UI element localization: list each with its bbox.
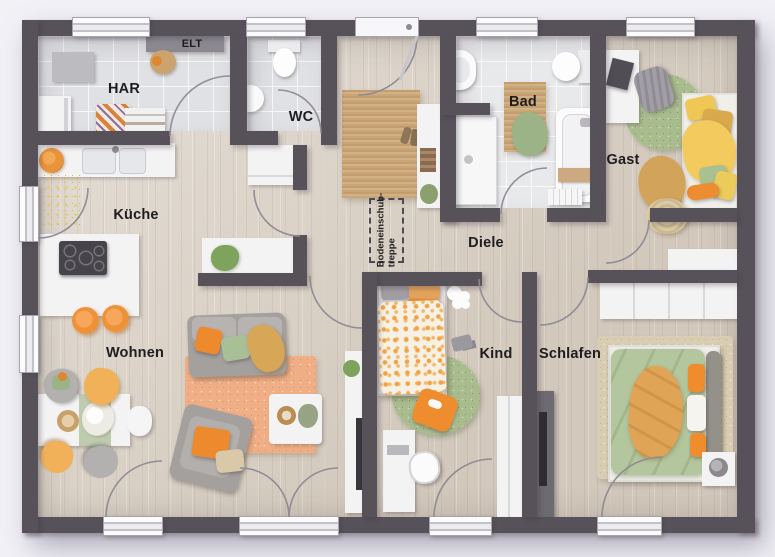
bath-radiator xyxy=(548,189,582,205)
room-label-kueche: Küche xyxy=(113,207,158,223)
wc-toilet-bowl xyxy=(273,48,296,77)
room-label-elt: ELT xyxy=(182,38,203,50)
door-wohnen-double xyxy=(239,516,339,536)
tv-sideboard-plant xyxy=(343,360,360,377)
tool-basket-handle xyxy=(152,56,162,66)
bar-stool-2 xyxy=(102,305,129,332)
room-label-gast: Gast xyxy=(606,152,639,168)
wall-exterior-right xyxy=(737,20,755,533)
kids-flower-rug xyxy=(447,286,462,301)
kids-duvet-dotted xyxy=(377,300,446,395)
wall-wc-east xyxy=(321,36,337,145)
kitchen-faucet xyxy=(112,146,119,153)
fruit-bowl xyxy=(39,148,64,173)
room-label-wohnen: Wohnen xyxy=(106,345,164,361)
floor-plan: Bodeneinschub-treppe xyxy=(0,0,775,557)
attic-stairs-label-line1: Bodeneinschub- xyxy=(376,193,387,267)
kids-desk-keyboard xyxy=(387,445,409,455)
entry-door-handle xyxy=(406,24,412,30)
bedroom-wardrobe xyxy=(600,283,737,319)
wall-hall-living xyxy=(198,273,307,286)
wall-bath-stub xyxy=(440,103,490,115)
dining-chair-decor-orange xyxy=(58,372,67,381)
hall-jute-rug xyxy=(342,90,420,198)
coffee-table-bowl xyxy=(277,406,296,425)
washing-machine-door xyxy=(64,98,68,132)
sofa-pillow-orange xyxy=(194,326,224,356)
wall-kids-west xyxy=(362,272,377,517)
attic-stairs-label: Bodeneinschub-treppe xyxy=(376,193,399,267)
window-gast xyxy=(626,17,695,37)
wall-kitchen-hall-lower xyxy=(293,235,307,275)
wall-wc-south xyxy=(247,131,278,145)
corridor-bench xyxy=(668,249,737,272)
bath-towel xyxy=(512,112,548,156)
room-label-kind: Kind xyxy=(479,346,512,362)
wall-kids-north xyxy=(362,272,482,286)
wall-bath-guest xyxy=(590,36,606,222)
wall-bath-west xyxy=(440,36,456,222)
lounge-pillow-tan xyxy=(215,449,245,474)
wall-har-wc xyxy=(230,36,247,145)
window-wohnen-left xyxy=(19,315,39,373)
storage-cabinet xyxy=(52,52,94,82)
kitchen-sink-2 xyxy=(119,148,146,174)
kids-wardrobe xyxy=(497,396,522,517)
flower-decor xyxy=(44,174,82,226)
room-label-har: HAR xyxy=(108,81,140,97)
window-schlafen xyxy=(597,516,662,536)
kitchen-sink-1 xyxy=(82,148,116,174)
room-label-schlafen: Schlafen xyxy=(539,346,601,362)
wall-bath-south-right xyxy=(547,208,590,222)
hall-shelf-plant xyxy=(420,184,438,204)
wall-bedroom-north xyxy=(588,270,737,283)
bar-stool-1 xyxy=(72,307,99,334)
nightstand-lamp xyxy=(709,458,728,477)
room-label-bad: Bad xyxy=(509,94,537,110)
window-kind xyxy=(429,516,492,536)
bed-pillow-white xyxy=(687,395,706,431)
hall-shelf-books xyxy=(420,148,436,172)
window-bad xyxy=(476,17,538,37)
wall-kids-bedroom xyxy=(522,272,537,517)
door-kueche-terrace xyxy=(19,186,39,242)
bath-toilet-bowl xyxy=(552,52,580,81)
room-label-diele: Diele xyxy=(468,235,504,251)
wall-bath-south-left xyxy=(440,208,500,222)
wall-exterior-left xyxy=(22,20,38,533)
door-wohnen-terrace xyxy=(103,516,163,536)
room-label-wc: WC xyxy=(289,109,314,125)
dining-chair-white xyxy=(127,406,152,436)
table-plate xyxy=(57,410,79,432)
wall-guest-south xyxy=(650,208,737,222)
hall-cabinet xyxy=(248,145,298,185)
window-wc xyxy=(246,17,306,37)
wall-har-south xyxy=(38,131,170,145)
window-har xyxy=(72,17,150,37)
attic-stairs-label-line2: treppe xyxy=(387,193,398,267)
bedroom-tv-screen xyxy=(539,412,547,486)
shower-drain xyxy=(464,155,473,164)
cooktop xyxy=(59,241,107,275)
wall-kitchen-hall-upper xyxy=(293,145,307,190)
bed-pillow-orange-1 xyxy=(688,364,705,392)
